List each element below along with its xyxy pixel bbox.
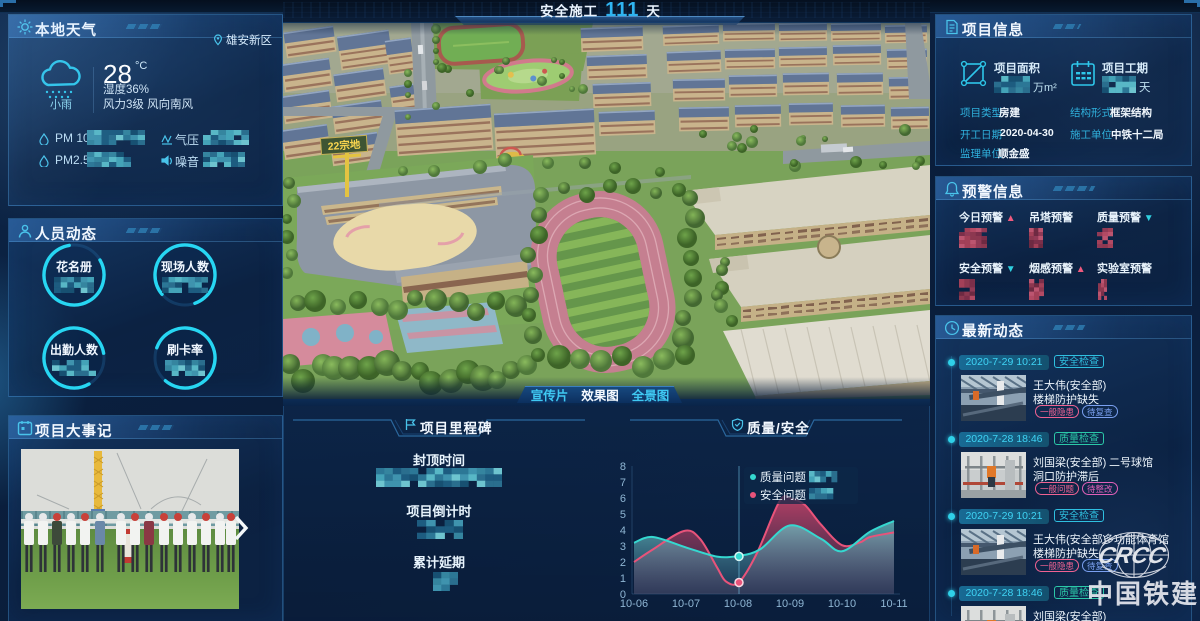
svg-text:7: 7	[620, 477, 626, 489]
svg-text:1: 1	[620, 573, 626, 585]
svg-text:质量问题: 质量问题	[760, 471, 806, 484]
svg-text:10-10: 10-10	[828, 598, 856, 610]
svg-text:安全问题: 安全问题	[760, 488, 806, 502]
svg-text:2: 2	[620, 557, 626, 569]
svg-text:CRCC: CRCC	[1096, 542, 1170, 568]
svg-text:10-08: 10-08	[724, 598, 752, 610]
svg-text:8: 8	[620, 461, 626, 473]
svg-text:5: 5	[620, 509, 626, 521]
svg-text:4: 4	[620, 525, 626, 537]
svg-text:6: 6	[620, 493, 626, 505]
svg-text:10-11: 10-11	[880, 598, 907, 610]
svg-text:中国铁建: 中国铁建	[1087, 579, 1197, 609]
svg-text:3: 3	[620, 541, 626, 553]
svg-text:10-09: 10-09	[776, 598, 804, 610]
svg-text:10-07: 10-07	[672, 598, 700, 610]
svg-text:10-06: 10-06	[620, 598, 648, 610]
